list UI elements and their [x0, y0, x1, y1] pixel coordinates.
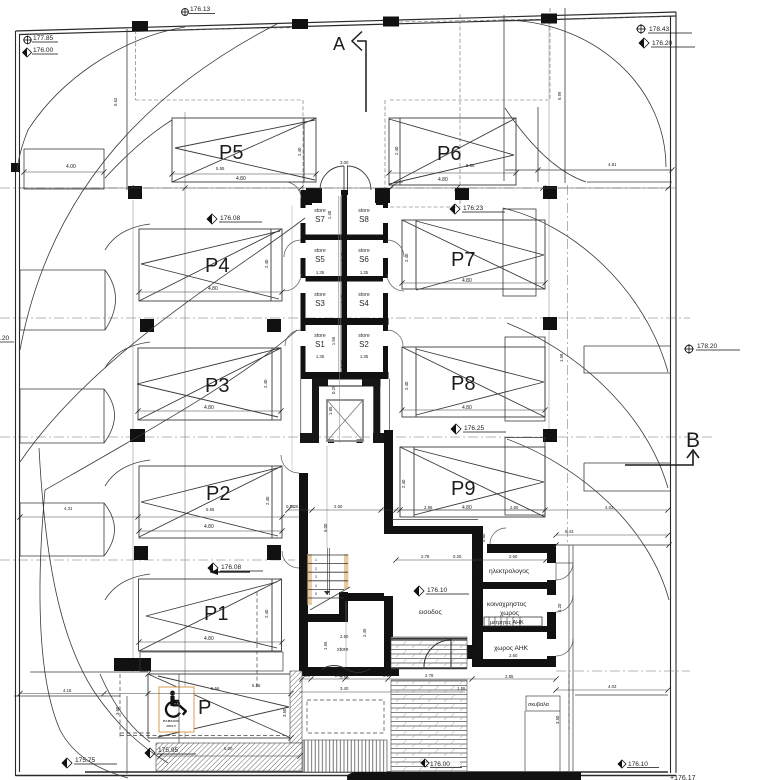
svg-text:P: P [198, 697, 211, 719]
svg-text:2.40: 2.40 [404, 253, 409, 262]
svg-text:P9: P9 [451, 478, 475, 500]
svg-text:1.35: 1.35 [316, 354, 325, 359]
svg-text:2: 2 [315, 567, 317, 571]
svg-text:S8: S8 [359, 215, 369, 224]
svg-text:4.00: 4.00 [66, 164, 76, 170]
svg-text:2.45: 2.45 [362, 628, 367, 637]
svg-text:1.40: 1.40 [340, 294, 345, 303]
svg-text:176.20: 176.20 [652, 40, 673, 47]
svg-text:ONLY: ONLY [167, 724, 177, 728]
svg-text:4.80: 4.80 [462, 278, 472, 284]
svg-text:177.85: 177.85 [33, 35, 54, 42]
svg-text:4.80: 4.80 [204, 524, 214, 530]
svg-text:1.35: 1.35 [360, 270, 369, 275]
svg-text:κοινοχρηστος: κοινοχρηστος [487, 601, 526, 608]
svg-text:5.00: 5.00 [224, 746, 233, 751]
svg-text:4.80: 4.80 [204, 636, 214, 642]
svg-text:0.20: 0.20 [340, 359, 345, 368]
svg-text:3.40: 3.40 [340, 686, 349, 691]
svg-text:S6: S6 [359, 255, 369, 264]
svg-text:2.40: 2.40 [404, 381, 409, 390]
svg-text:5: 5 [315, 592, 317, 596]
svg-text:2.40: 2.40 [394, 146, 399, 155]
svg-text:1.40: 1.40 [340, 252, 345, 261]
svg-text:B: B [686, 429, 700, 452]
svg-text:4.03: 4.03 [608, 684, 617, 689]
svg-text:1.98: 1.98 [559, 353, 564, 362]
svg-text:store: store [337, 647, 349, 653]
svg-text:PARKING: PARKING [163, 719, 180, 723]
svg-text:2.78: 2.78 [425, 673, 434, 678]
svg-text:1.55: 1.55 [323, 641, 328, 650]
svg-text:3.50: 3.50 [555, 715, 560, 724]
svg-text:1.35: 1.35 [360, 354, 369, 359]
svg-text:store: store [314, 292, 326, 298]
svg-text:2.40: 2.40 [297, 147, 302, 156]
svg-text:2.50: 2.50 [335, 673, 344, 678]
svg-text:S2: S2 [359, 340, 369, 349]
svg-text:1.40: 1.40 [475, 599, 480, 608]
svg-text:σκυβαλα: σκυβαλα [528, 702, 549, 708]
svg-text:0.25: 0.25 [383, 673, 392, 678]
svg-text:store: store [358, 208, 370, 214]
svg-text:178.20: 178.20 [697, 343, 718, 350]
svg-text:1: 1 [315, 558, 317, 562]
svg-text:.25: .25 [304, 673, 311, 678]
svg-text:4.80: 4.80 [204, 405, 214, 411]
svg-text:2.60: 2.60 [509, 554, 518, 559]
svg-text:2.78: 2.78 [421, 554, 430, 559]
svg-text:2.50: 2.50 [334, 504, 343, 509]
svg-text:P7: P7 [451, 249, 475, 271]
svg-text:5.62: 5.62 [113, 97, 118, 106]
svg-text:P4: P4 [205, 255, 229, 277]
svg-text:store: store [358, 333, 370, 339]
svg-text:2.40: 2.40 [264, 609, 269, 618]
svg-text:2.50: 2.50 [340, 634, 349, 639]
svg-text:P1: P1 [204, 603, 228, 625]
svg-text:2.60: 2.60 [509, 653, 518, 658]
svg-text:P5: P5 [219, 142, 243, 164]
svg-text:5.55: 5.55 [466, 163, 475, 168]
svg-text:5.56: 5.56 [211, 686, 220, 691]
svg-text:4.80: 4.80 [438, 177, 448, 183]
svg-text:6.43: 6.43 [565, 529, 574, 534]
svg-text:1.55: 1.55 [331, 336, 336, 345]
svg-text:2.40: 2.40 [263, 379, 268, 388]
svg-text:4.80: 4.80 [462, 405, 472, 411]
svg-text:S5: S5 [315, 255, 325, 264]
svg-text:χωρος: χωρος [500, 610, 519, 617]
svg-text:P2: P2 [206, 483, 230, 505]
svg-text:5.55: 5.55 [206, 507, 215, 512]
svg-text:4.81: 4.81 [608, 162, 617, 167]
svg-text:.20: .20 [0, 335, 9, 342]
svg-text:2.40: 2.40 [401, 479, 406, 488]
svg-text:+176.17: +176.17 [670, 775, 696, 780]
svg-text:176.08: 176.08 [220, 215, 241, 222]
svg-text:store: store [314, 248, 326, 254]
svg-text:1.35: 1.35 [316, 270, 325, 275]
svg-text:1.85: 1.85 [328, 406, 333, 415]
svg-text:175.95: 175.95 [158, 747, 179, 754]
svg-text:4.20: 4.20 [557, 603, 562, 612]
svg-text:2.60: 2.60 [510, 505, 519, 510]
svg-text:store: store [358, 248, 370, 254]
svg-text:178.43: 178.43 [649, 26, 670, 33]
svg-text:176.10: 176.10 [427, 587, 448, 594]
svg-text:4.80: 4.80 [236, 176, 246, 182]
svg-text:S7: S7 [315, 215, 325, 224]
svg-text:A: A [333, 34, 345, 54]
svg-text:1.00: 1.00 [475, 563, 480, 572]
svg-text:2.95: 2.95 [424, 505, 433, 510]
svg-text:2.40: 2.40 [264, 259, 269, 268]
svg-text:P8: P8 [451, 373, 475, 395]
svg-text:2.85: 2.85 [505, 674, 514, 679]
svg-text:176.10: 176.10 [628, 761, 648, 768]
svg-text:0.25: 0.25 [453, 554, 462, 559]
svg-text:176.25: 176.25 [464, 425, 485, 432]
svg-text:S3: S3 [315, 299, 325, 308]
svg-text:3.50: 3.50 [282, 708, 287, 717]
svg-text:χωρος ΑΗΚ: χωρος ΑΗΚ [494, 645, 529, 652]
svg-text:5.99: 5.99 [557, 91, 562, 100]
svg-text:3.00: 3.00 [340, 160, 349, 165]
svg-text:6.00: 6.00 [323, 523, 328, 532]
svg-text:2.40: 2.40 [265, 496, 270, 505]
svg-text:store: store [314, 208, 326, 214]
svg-text:store: store [358, 292, 370, 298]
svg-text:εισοδος: εισοδος [419, 609, 442, 616]
svg-text:176.23: 176.23 [463, 205, 484, 212]
svg-text:176.00: 176.00 [33, 47, 54, 54]
svg-text:5.55: 5.55 [216, 166, 225, 171]
svg-text:0.25: 0.25 [384, 504, 393, 509]
svg-text:P6: P6 [437, 143, 461, 165]
svg-text:4.31: 4.31 [64, 506, 73, 511]
svg-text:1.55: 1.55 [457, 686, 466, 691]
svg-text:176.08: 176.08 [221, 564, 242, 571]
svg-text:4.02: 4.02 [605, 505, 614, 510]
svg-text:S1: S1 [315, 340, 325, 349]
svg-text:3: 3 [315, 575, 317, 579]
svg-text:4: 4 [315, 584, 317, 588]
svg-text:0.25: 0.25 [331, 385, 336, 394]
svg-text:store: store [314, 333, 326, 339]
svg-text:0.60: 0.60 [481, 533, 486, 542]
svg-text:4.80: 4.80 [208, 286, 218, 292]
svg-text:176.13: 176.13 [190, 6, 211, 13]
svg-text:μετρητες ΑΗΚ: μετρητες ΑΗΚ [490, 620, 524, 626]
svg-text:1.10: 1.10 [475, 641, 480, 650]
svg-text:176.00: 176.00 [430, 761, 450, 768]
svg-text:4.15: 4.15 [63, 688, 72, 693]
svg-text:0.25: 0.25 [290, 504, 299, 509]
svg-text:1.40: 1.40 [327, 210, 332, 219]
svg-text:S4: S4 [359, 299, 369, 308]
svg-text:175.75: 175.75 [75, 757, 96, 764]
svg-text:5.56: 5.56 [252, 683, 261, 688]
svg-text:ηλεκτρολογος: ηλεκτρολογος [489, 568, 529, 575]
